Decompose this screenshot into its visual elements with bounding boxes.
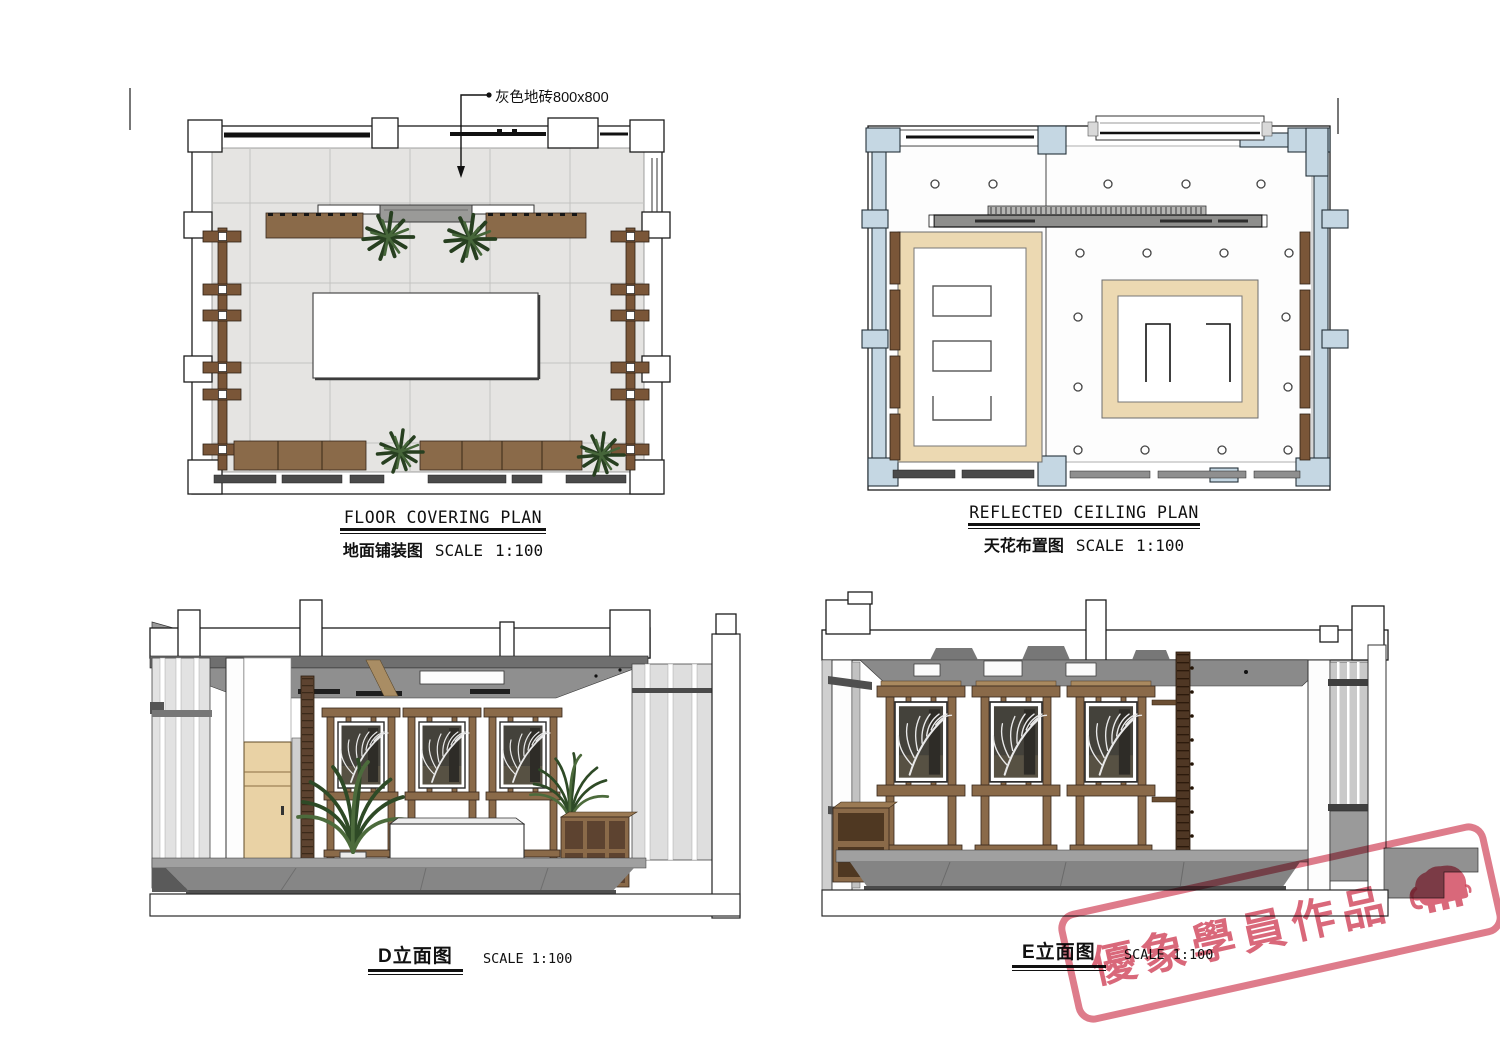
floor-covering-plan-drawing (130, 88, 670, 494)
title-rule (968, 523, 1200, 526)
title-rule-thin (968, 528, 1200, 529)
ceiling-bench-cushions (893, 470, 1300, 478)
title-rule-thin (368, 974, 463, 975)
floor-plan-scale-value: 1:100 (495, 541, 543, 560)
elevation-d-scale: SCALE 1:100 (483, 951, 572, 967)
ceiling-plan-title-en: REFLECTED CEILING PLAN (969, 503, 1199, 522)
title-rule (340, 528, 546, 531)
wood-door (244, 742, 291, 863)
floor-plan-title-en: FLOOR COVERING PLAN (344, 508, 542, 527)
elevation-d-title: D立面图 (368, 941, 463, 968)
ceiling-plan-scale-label: SCALE (1076, 536, 1124, 555)
tile-annotation: 灰色地砖800x800 (495, 86, 609, 107)
display-frame (1067, 681, 1155, 871)
floor-plan-scale-label: SCALE (435, 541, 483, 560)
title-rule (368, 969, 463, 972)
ceiling-plan-title-block: REFLECTED CEILING PLAN 天花布置图 SCALE 1:100 (968, 503, 1200, 556)
elevation-d-drawing (150, 600, 740, 918)
title-rule-thin (340, 533, 546, 534)
ceiling-plan-title-zh: 天花布置图 (984, 532, 1064, 556)
elephant-icon (1400, 856, 1476, 921)
display-frame (972, 681, 1060, 871)
reflected-ceiling-plan-drawing (862, 98, 1348, 490)
floor-plan-title-block: FLOOR COVERING PLAN 地面铺装图 SCALE 1:100 (340, 508, 546, 561)
floor-plan-title-zh: 地面铺装图 (343, 537, 423, 561)
ceiling-plan-scale-value: 1:100 (1136, 536, 1184, 555)
drawing-sheet: { "floor_plan": { "title_en": "FLOOR COV… (0, 0, 1500, 1061)
display-frame (877, 681, 965, 871)
elevation-d-title-block: D立面图 (368, 941, 463, 975)
